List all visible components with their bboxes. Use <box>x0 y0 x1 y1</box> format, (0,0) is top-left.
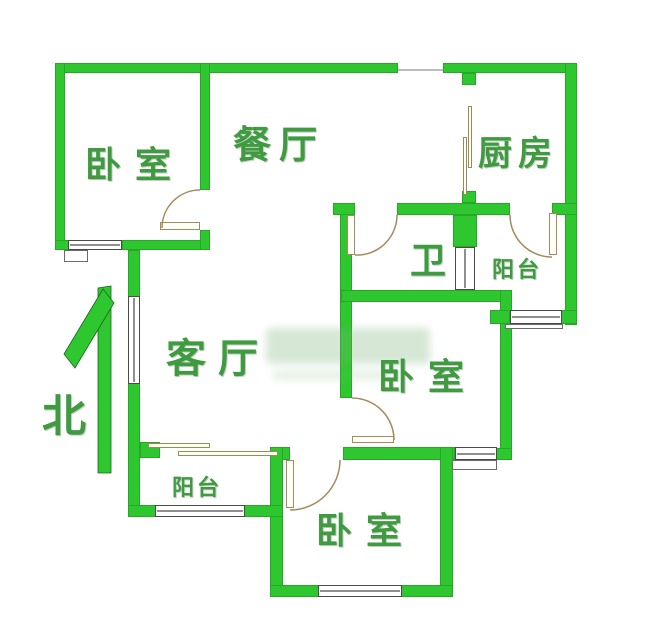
door-arc-kitchen-balcony <box>510 215 552 257</box>
wall-living-left-lower <box>128 382 140 517</box>
label-kitchen: 厨房 <box>478 126 558 175</box>
sliding-door-kitchen-panel-1 <box>468 106 472 168</box>
wall-bed1-bottom-b <box>122 240 210 250</box>
window-balcony-right <box>510 310 562 324</box>
door-arc-bathroom <box>355 215 397 255</box>
wall-balcony-right-bottom-a <box>490 310 510 324</box>
wall-bath-top-b <box>397 203 510 215</box>
watermark-subline <box>272 370 394 380</box>
label-bedroom-bottom: 卧室 <box>316 502 416 554</box>
label-north: 北 <box>42 380 86 444</box>
wall-bath-top-a <box>333 203 355 215</box>
label-bedroom-top-left: 卧室 <box>85 136 185 188</box>
wall-hall-b <box>343 447 455 460</box>
label-balcony-right: 阳台 <box>492 252 542 284</box>
door-bathroom <box>347 215 355 255</box>
wall-bed2-top <box>341 290 512 302</box>
wall-top-right <box>443 63 577 73</box>
wall-bed1-right-upper <box>200 63 210 190</box>
wall-bed3-left <box>270 447 283 597</box>
window-bed1-bottom <box>68 240 122 250</box>
window-hall-right <box>455 447 497 460</box>
wall-partition-stub-top <box>462 73 476 85</box>
sliding-door-kitchen-panel-2 <box>463 137 467 195</box>
top-wall-opening <box>398 69 443 71</box>
door-bed2 <box>352 436 394 443</box>
label-balcony-bottom-left: 阳台 <box>172 470 222 502</box>
label-bedroom-mid-right: 卧室 <box>378 348 478 400</box>
window-living-left <box>128 296 140 384</box>
window-bath-balcony <box>455 247 475 290</box>
wall-balcony-right-bottom-b <box>560 310 577 324</box>
door-bed1 <box>160 222 200 230</box>
wall-outer-right <box>565 63 577 325</box>
floor-plan: 卧室 餐厅 厨房 卫 阳台 客厅 卧室 阳台 卧室 北 <box>0 0 671 640</box>
door-arc-bed2 <box>352 398 394 440</box>
windowsill-hall-right <box>452 460 497 470</box>
door-kitchen-balcony <box>549 213 557 255</box>
wall-bath-right <box>453 215 477 247</box>
wall-living-left-upper <box>128 250 140 298</box>
windowsill-bed1 <box>64 250 88 262</box>
wall-outer-left <box>55 63 65 250</box>
label-living-room: 客厅 <box>166 326 270 384</box>
wall-top-left <box>55 63 398 73</box>
sliding-door-balcony-panel-1 <box>148 443 210 448</box>
windowsill-balcony-right <box>505 324 563 329</box>
label-bathroom: 卫 <box>410 232 446 284</box>
door-bed3 <box>286 460 294 508</box>
sliding-door-balcony-panel-2 <box>178 451 278 456</box>
label-dining-room: 餐厅 <box>233 114 325 169</box>
window-balcony-left <box>155 505 245 517</box>
wall-bed1-right-lower <box>200 230 210 250</box>
window-bed3-bottom <box>318 585 402 597</box>
